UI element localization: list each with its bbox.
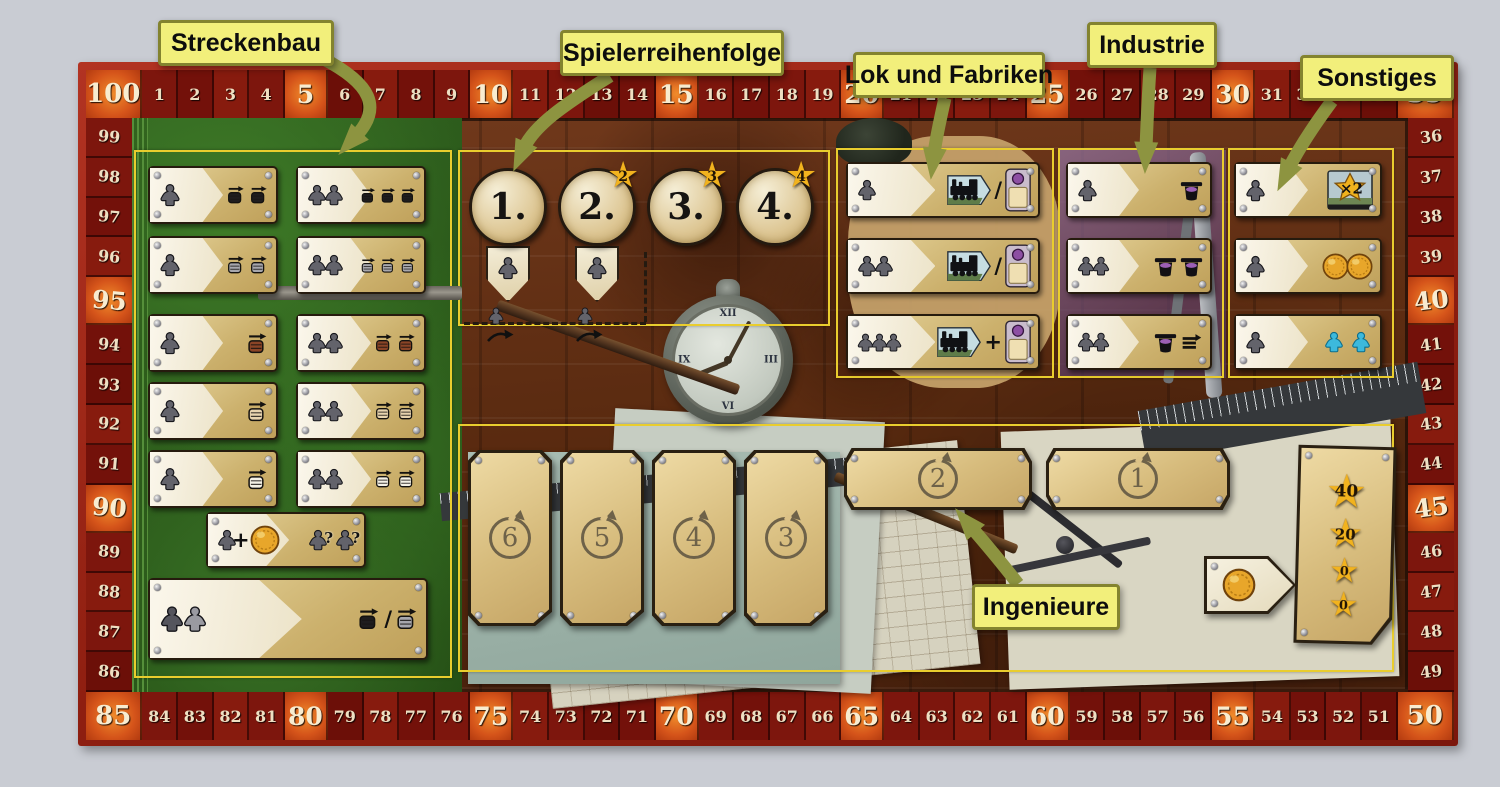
round-number-icon: 6: [489, 517, 531, 559]
track-space-71: 71: [620, 692, 656, 740]
screw-icon: [1240, 320, 1247, 327]
rail-icon-beige: [246, 400, 269, 423]
star-value: 4: [796, 170, 806, 184]
question-worker-icon: ?: [333, 528, 357, 552]
engineer-slot-round-5[interactable]: 5: [560, 450, 644, 626]
worker-icon: [180, 604, 210, 634]
track-space-6: 6: [328, 70, 364, 118]
screw-icon: [302, 495, 309, 502]
coin-icon: [1222, 568, 1256, 602]
worker-icon: [883, 332, 904, 353]
plate-face: [1207, 559, 1293, 611]
screw-icon: [154, 388, 161, 395]
screw-icon: [265, 388, 272, 395]
industry-marker-icon: [1154, 331, 1177, 354]
screw-icon: [212, 555, 219, 562]
track-space-83: 83: [178, 692, 214, 740]
reward-zone: [374, 316, 417, 370]
screw-icon: [852, 320, 859, 327]
track-space-61: 61: [991, 692, 1027, 740]
engineer-slot-round-6[interactable]: 6: [468, 450, 552, 626]
streckenbau-card-white-2workers[interactable]: [296, 450, 426, 508]
screw-icon: [302, 281, 309, 288]
callout-label: Industrie: [1099, 31, 1205, 60]
screw-icon: [1240, 205, 1247, 212]
track-space-3: 3: [214, 70, 250, 118]
screw-icon: [212, 518, 219, 525]
streckenbau-coin-card[interactable]: +??: [206, 512, 366, 568]
callout-lok-und-fabriken: Lok und Fabriken: [853, 52, 1045, 98]
screw-icon: [538, 457, 545, 464]
track-space-69: 69: [699, 692, 735, 740]
round-number-icon: 1: [1118, 459, 1158, 499]
screw-icon: [1369, 244, 1376, 251]
screw-icon: [413, 242, 420, 249]
screw-icon: [302, 242, 309, 249]
screw-icon: [1382, 454, 1389, 461]
worker-icon: [322, 253, 346, 277]
track-space-41: 41: [1408, 325, 1454, 365]
star-value: 20: [1335, 527, 1356, 543]
engineer-slot-round-1[interactable]: 1: [1046, 448, 1230, 510]
worker-icon: [322, 331, 346, 355]
screw-icon: [659, 612, 666, 619]
screw-icon: [1240, 168, 1247, 175]
screw-icon: [302, 388, 309, 395]
coin-icon: [250, 525, 280, 555]
track-space-67: 67: [770, 692, 806, 740]
separator-text: /: [384, 609, 392, 630]
track-space-30: 30: [1212, 70, 1255, 118]
track-space-2: 2: [178, 70, 214, 118]
screw-icon: [751, 457, 758, 464]
worker-icon: [157, 398, 183, 424]
screw-icon: [302, 172, 309, 179]
track-space-19: 19: [806, 70, 842, 118]
round-number-icon: 3: [765, 517, 807, 559]
track-space-84: 84: [142, 692, 178, 740]
reward-zone: [226, 238, 269, 292]
industrie-card-1[interactable]: [1066, 162, 1212, 218]
worker-move-icon: [575, 306, 605, 344]
score-track-right: 3637383940414243444546474849: [1408, 118, 1454, 692]
score-track-bottom: 8584838281807978777675747372717069686766…: [86, 692, 1454, 740]
worker-icon: [855, 178, 879, 202]
cost-zone: [1075, 240, 1105, 292]
rail-icon-beige: [397, 401, 417, 421]
screw-icon: [1211, 563, 1218, 570]
callout-industrie: Industrie: [1087, 22, 1217, 68]
callout-label: Lok und Fabriken: [845, 61, 1053, 90]
screw-icon: [814, 457, 821, 464]
screw-icon: [1053, 455, 1060, 462]
track-space-7: 7: [364, 70, 400, 118]
screw-icon: [1199, 357, 1206, 364]
streckenbau-card-beige-2workers[interactable]: [296, 382, 426, 440]
round-number-icon: 4: [673, 517, 715, 559]
track-space-28: 28: [1141, 70, 1177, 118]
worker-icon: [1075, 178, 1100, 203]
worker-icon: [322, 399, 346, 423]
streckenbau-wide-card[interactable]: /: [148, 578, 428, 660]
screw-icon: [1072, 357, 1079, 364]
screw-icon: [353, 555, 360, 562]
screw-icon: [1369, 357, 1376, 364]
screw-icon: [1027, 244, 1034, 251]
track-space-29: 29: [1176, 70, 1212, 118]
reward-zone: [1154, 316, 1203, 368]
track-space-16: 16: [699, 70, 735, 118]
sonstiges-card-double_tile[interactable]: ×2: [1234, 162, 1382, 218]
track-space-81: 81: [249, 692, 285, 740]
screw-icon: [154, 211, 161, 218]
plate-face: 5: [563, 453, 641, 623]
track-space-70: 70: [656, 692, 699, 740]
screw-icon: [567, 457, 574, 464]
rail-icon-grey: [380, 257, 397, 274]
question-mark: ?: [351, 529, 360, 547]
track-space-14: 14: [620, 70, 656, 118]
screw-icon: [1072, 281, 1079, 288]
track-space-94: 94: [86, 325, 132, 365]
cost-zone: [305, 168, 339, 222]
track-space-10: 10: [470, 70, 513, 118]
score-star-20: ★20: [1327, 514, 1364, 555]
screw-icon: [852, 244, 859, 251]
screw-icon: [1305, 452, 1312, 459]
streckenbau-card-grey-2workers[interactable]: [296, 236, 426, 294]
streckenbau-card-grey-1worker[interactable]: [148, 236, 278, 294]
track-space-95: 95: [86, 277, 132, 325]
screw-icon: [415, 647, 422, 654]
track-space-4: 4: [249, 70, 285, 118]
track-space-56: 56: [1176, 692, 1212, 740]
worker-icon: [157, 330, 183, 356]
screw-icon: [1211, 600, 1218, 607]
lok-fabriken-card-2workers[interactable]: /: [846, 238, 1040, 294]
screw-icon: [1199, 320, 1206, 327]
track-space-74: 74: [513, 692, 549, 740]
worker-icon: [1243, 330, 1268, 355]
callout-ingenieure: Ingenieure: [972, 584, 1120, 630]
track-space-62: 62: [955, 692, 991, 740]
screw-icon: [751, 612, 758, 619]
track-space-82: 82: [214, 692, 250, 740]
streckenbau-card-white-1worker[interactable]: [148, 450, 278, 508]
reward-zone: /: [947, 240, 1031, 292]
track-space-31: 31: [1255, 70, 1291, 118]
track-space-26: 26: [1070, 70, 1106, 118]
track-space-43: 43: [1408, 405, 1454, 445]
screw-icon: [154, 456, 161, 463]
track-space-72: 72: [585, 692, 621, 740]
engineer-coin-plate[interactable]: [1204, 556, 1296, 614]
screw-icon: [265, 427, 272, 434]
star-badge: ★3: [696, 158, 728, 194]
screw-icon: [475, 457, 482, 464]
screw-icon: [265, 172, 272, 179]
player-order-space-1[interactable]: 1.: [469, 168, 547, 246]
track-space-59: 59: [1070, 692, 1106, 740]
engineer-star-score-plate: ★40★20★0★0: [1293, 445, 1396, 645]
book-pages-texture: [132, 118, 148, 692]
track-space-18: 18: [770, 70, 806, 118]
coin-icon: [1322, 253, 1349, 280]
rail-icon-grey: [226, 255, 246, 275]
screw-icon: [154, 427, 161, 434]
track-space-75: 75: [470, 692, 513, 740]
sonstiges-card-coins[interactable]: [1234, 238, 1382, 294]
screw-icon: [1072, 320, 1079, 327]
track-space-89: 89: [86, 533, 132, 573]
screw-icon: [1216, 496, 1223, 503]
screw-icon: [413, 211, 420, 218]
screw-icon: [302, 359, 309, 366]
track-space-96: 96: [86, 237, 132, 277]
question-worker-icon: ?: [306, 528, 330, 552]
screw-icon: [265, 495, 272, 502]
track-space-12: 12: [549, 70, 585, 118]
screw-icon: [1369, 205, 1376, 212]
screw-icon: [1199, 205, 1206, 212]
rail-icon-beige: [374, 401, 394, 421]
reward-zone: [374, 452, 417, 506]
score-star-0: ★0: [1329, 554, 1360, 589]
worker-icon: [157, 182, 183, 208]
track-space-13: 13: [585, 70, 621, 118]
screw-icon: [1027, 320, 1034, 327]
score-star-40: ★40: [1325, 467, 1367, 514]
cost-zone: [305, 452, 339, 506]
track-space-15: 15: [656, 70, 699, 118]
screw-icon: [353, 518, 360, 525]
screw-icon: [413, 388, 420, 395]
screw-icon: [265, 211, 272, 218]
track-space-57: 57: [1141, 692, 1177, 740]
reward-zone: +: [937, 316, 1031, 368]
lok-fabriken-card-1workers[interactable]: /: [846, 162, 1040, 218]
track-space-17: 17: [734, 70, 770, 118]
russian-railroads-board-screenshot: XII III VI IX 10012345678910111213141516…: [0, 0, 1500, 787]
screw-icon: [1240, 244, 1247, 251]
track-space-54: 54: [1255, 692, 1291, 740]
track-space-42: 42: [1408, 365, 1454, 405]
screw-icon: [265, 281, 272, 288]
track-space-92: 92: [86, 405, 132, 445]
screw-icon: [302, 456, 309, 463]
screw-icon: [154, 242, 161, 249]
coin-icon: [1346, 253, 1373, 280]
track-space-68: 68: [734, 692, 770, 740]
screw-icon: [1018, 455, 1025, 462]
screw-icon: [415, 584, 422, 591]
star-value: 0: [1339, 599, 1348, 612]
track-space-78: 78: [364, 692, 400, 740]
streckenbau-card-beige-1worker[interactable]: [148, 382, 278, 440]
plate-face: 6: [471, 453, 549, 623]
separator-text: /: [994, 256, 1002, 277]
rail-icon-grey: [400, 257, 417, 274]
track-space-80: 80: [285, 692, 328, 740]
sonstiges-card-extra_workers[interactable]: [1234, 314, 1382, 370]
streckenbau-card-brown-1worker[interactable]: [148, 314, 278, 372]
teal-worker-icon: [1349, 330, 1373, 354]
reward-zone: /: [947, 164, 1031, 216]
callout-streckenbau: Streckenbau: [158, 20, 334, 66]
screw-icon: [567, 612, 574, 619]
score-track-left: 9998979695949392919089888786: [86, 118, 132, 692]
screw-icon: [413, 281, 420, 288]
streckenbau-card-black-1worker[interactable]: [148, 166, 278, 224]
order-star-badge-3: ★3: [696, 158, 728, 194]
worker-icon: [1090, 331, 1112, 353]
lok-fabriken-card-3workers[interactable]: +: [846, 314, 1040, 370]
reward-zone: ??: [306, 514, 357, 566]
locomotive-tile-icon: [947, 175, 991, 205]
reward-zone: [360, 238, 417, 292]
screw-icon: [1216, 455, 1223, 462]
track-space-8: 8: [399, 70, 435, 118]
reward-zone: [374, 384, 417, 438]
industrie-card-3[interactable]: [1066, 314, 1212, 370]
screw-icon: [265, 320, 272, 327]
track-space-77: 77: [399, 692, 435, 740]
worker-move-icon: [486, 306, 516, 344]
screw-icon: [413, 427, 420, 434]
screw-icon: [1072, 244, 1079, 251]
screw-icon: [1027, 205, 1034, 212]
track-space-44: 44: [1408, 445, 1454, 485]
track-space-85: 85: [86, 692, 142, 740]
round-number-icon: 2: [918, 459, 958, 499]
engineer-slot-round-2[interactable]: 2: [844, 448, 1032, 510]
screw-icon: [413, 456, 420, 463]
track-space-37: 37: [1408, 158, 1454, 198]
track-space-98: 98: [86, 158, 132, 198]
screw-icon: [302, 427, 309, 434]
question-mark: ?: [324, 529, 333, 547]
track-space-93: 93: [86, 365, 132, 405]
screw-icon: [852, 281, 859, 288]
track-space-97: 97: [86, 198, 132, 238]
track-space-66: 66: [806, 692, 842, 740]
engineer-slot-round-4[interactable]: 4: [652, 450, 736, 626]
rail-icon-black: [400, 187, 417, 204]
cost-zone: [157, 580, 203, 658]
reward-zone: [1322, 240, 1373, 292]
streckenbau-card-brown-2workers[interactable]: [296, 314, 426, 372]
track-space-100: 100: [86, 70, 142, 118]
screw-icon: [1369, 320, 1376, 327]
screw-icon: [1072, 205, 1079, 212]
rail-icon-black: [249, 185, 269, 205]
track-space-39: 39: [1408, 237, 1454, 277]
engineer-slot-round-3[interactable]: 3: [744, 450, 828, 626]
worker-icon: [322, 467, 346, 491]
industrie-card-2[interactable]: [1066, 238, 1212, 294]
track-space-73: 73: [549, 692, 585, 740]
callout-spielerreihenfolge: Spielerreihenfolge: [560, 30, 784, 76]
star-badge: ★4: [785, 158, 817, 194]
industry-marker-icon: [1180, 255, 1203, 278]
reward-zone: /: [357, 580, 419, 658]
track-space-36: 36: [1408, 118, 1454, 158]
order-return-dashed-line-vertical: [644, 252, 647, 322]
worker-icon: [1243, 178, 1268, 203]
rail-icon-black: [357, 607, 381, 631]
reward-zone: [1154, 240, 1203, 292]
screw-icon: [154, 647, 161, 654]
callout-label: Sonstiges: [1317, 64, 1436, 93]
doubler-tile-icon: ×2: [1327, 170, 1373, 210]
screw-icon: [851, 455, 858, 462]
track-space-55: 55: [1212, 692, 1255, 740]
rail-stack-icon: [1180, 331, 1203, 354]
screw-icon: [302, 320, 309, 327]
callout-sonstiges: Sonstiges: [1300, 55, 1454, 101]
rail-icon-brown: [397, 333, 417, 353]
screw-icon: [851, 496, 858, 503]
track-space-79: 79: [328, 692, 364, 740]
screw-icon: [154, 495, 161, 502]
worker-icon: [322, 183, 346, 207]
screw-icon: [1199, 281, 1206, 288]
reward-zone: [360, 168, 417, 222]
screw-icon: [1053, 496, 1060, 503]
score-track-top: 1001234567891011121314151617181920212223…: [86, 70, 1454, 118]
cost-zone: [305, 238, 339, 292]
streckenbau-card-black-2workers[interactable]: [296, 166, 426, 224]
track-space-53: 53: [1291, 692, 1327, 740]
rail-icon-white: [246, 468, 269, 491]
track-space-91: 91: [86, 445, 132, 485]
rail-icon-white: [374, 469, 394, 489]
worker-icon: [1243, 254, 1268, 279]
track-space-64: 64: [884, 692, 920, 740]
screw-icon: [1369, 281, 1376, 288]
order-star-badge-4: ★4: [785, 158, 817, 194]
screw-icon: [154, 584, 161, 591]
rail-icon-white: [397, 469, 417, 489]
track-space-45: 45: [1408, 485, 1454, 533]
track-space-49: 49: [1408, 652, 1454, 692]
screw-icon: [1199, 244, 1206, 251]
worker-icon: [1090, 255, 1112, 277]
screw-icon: [413, 172, 420, 179]
cost-zone: [855, 240, 889, 292]
screw-icon: [1018, 496, 1025, 503]
screw-icon: [302, 211, 309, 218]
track-space-58: 58: [1105, 692, 1141, 740]
cost-zone: +: [215, 514, 280, 566]
locomotive-tile-icon: [937, 327, 981, 357]
track-space-1: 1: [142, 70, 178, 118]
reward-zone: ×2: [1327, 164, 1373, 216]
order-star-badge-2: ★2: [607, 158, 639, 194]
separator-text: +: [984, 332, 1002, 353]
screw-icon: [154, 281, 161, 288]
plate-face: 4: [655, 453, 733, 623]
screw-icon: [154, 320, 161, 327]
cost-zone: [1075, 316, 1105, 368]
track-space-86: 86: [86, 652, 132, 692]
separator-text: /: [994, 180, 1002, 201]
track-space-65: 65: [841, 692, 884, 740]
screw-icon: [154, 172, 161, 179]
rail-icon-black: [226, 185, 246, 205]
rail-icon-grey: [249, 255, 269, 275]
score-star-0: ★0: [1328, 588, 1359, 623]
